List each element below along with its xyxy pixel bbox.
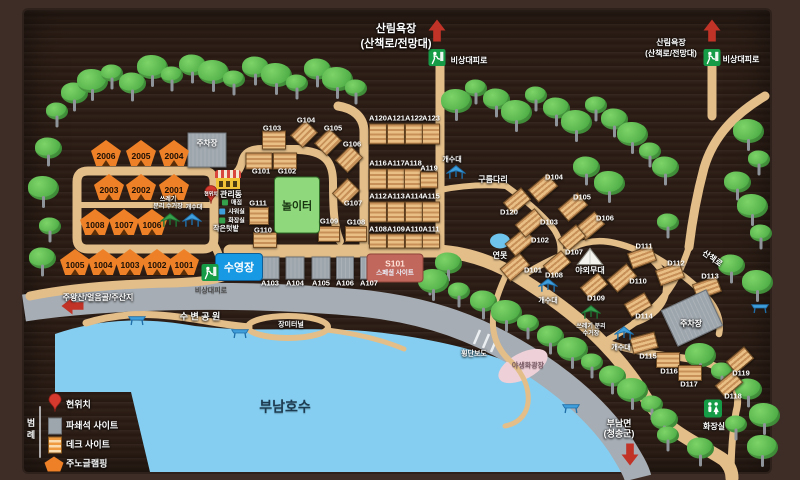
toilet-icon xyxy=(704,400,722,423)
map-label: 쓰레기 분리 xyxy=(576,324,605,330)
deck-site-A110 xyxy=(405,234,423,249)
amenity-row: 화장실 xyxy=(219,216,245,225)
tent-door-icon xyxy=(137,160,145,166)
deck-site-A115 xyxy=(422,202,440,223)
deck-site-A111 xyxy=(422,234,440,249)
amenity-color-icon xyxy=(219,208,225,214)
site-label: G110 xyxy=(254,226,272,235)
glamping-tent-1008: 1008 xyxy=(80,209,110,235)
map-label: (청송군) xyxy=(604,429,635,438)
amenity-color-icon xyxy=(222,199,228,205)
glamping-tent-1003: 1003 xyxy=(115,249,145,275)
glamping-tent-2005: 2005 xyxy=(126,140,156,166)
tree-icon xyxy=(345,80,367,107)
canopy-green-icon xyxy=(160,213,181,236)
glamping-tent-2002: 2002 xyxy=(126,174,156,200)
tent-door-icon xyxy=(153,269,161,275)
glamping-tent-2004: 2004 xyxy=(159,140,189,166)
legend-pin-icon xyxy=(49,393,62,417)
table-icon xyxy=(127,313,147,331)
site-label: D106 xyxy=(596,214,614,223)
deck-site-A114 xyxy=(405,202,423,223)
site-label: D101 xyxy=(524,266,542,275)
tent-door-icon xyxy=(126,269,134,275)
map-label: 부남호수 xyxy=(259,400,311,415)
tree-icon xyxy=(725,416,747,443)
tree-icon xyxy=(747,435,778,469)
map-label: 관리동 xyxy=(220,191,242,199)
site-label: D108 xyxy=(545,271,563,280)
site-label: A106 xyxy=(336,279,354,288)
gravel-site-A106 xyxy=(336,257,354,280)
site-label: D109 xyxy=(587,294,605,303)
deck-site-G106 xyxy=(335,145,363,173)
deck-site-A121 xyxy=(387,124,405,145)
legend-divider xyxy=(39,406,41,458)
site-label: A119 xyxy=(420,164,438,173)
site-label: A110 xyxy=(405,225,423,234)
site-label: G104 xyxy=(297,116,315,125)
site-label: A118 xyxy=(404,159,422,168)
map-label: (산책로/전망대) xyxy=(360,39,431,51)
deck-site-A120 xyxy=(369,124,387,145)
map-label: 수거장 xyxy=(583,331,600,337)
site-label: D110 xyxy=(629,277,647,286)
map-label: 현위치 xyxy=(204,192,218,197)
map-label: 야외무대 xyxy=(575,267,604,275)
map-label: 연못 xyxy=(493,252,508,260)
gravel-site-A104 xyxy=(286,257,305,280)
tree-icon xyxy=(29,248,56,279)
glamping-tent-1002: 1002 xyxy=(142,249,172,275)
tree-icon xyxy=(657,427,679,454)
deck-site-G109 xyxy=(318,226,340,242)
awning xyxy=(215,170,241,178)
site-label: A109 xyxy=(387,225,405,234)
swimming-pool: 수영장 xyxy=(215,253,263,281)
tree-icon xyxy=(28,176,59,210)
playground: 놀이터 xyxy=(274,177,320,234)
deck-site-A112 xyxy=(369,202,387,223)
tent-door-icon xyxy=(99,269,107,275)
map-label: 산책로 xyxy=(701,249,724,269)
table-icon xyxy=(561,401,581,419)
tree-icon xyxy=(652,157,679,188)
deck-site-A117 xyxy=(387,169,405,190)
tent-door-icon xyxy=(120,229,128,235)
tree-icon xyxy=(35,138,62,169)
legend-title: 범례 xyxy=(25,418,38,442)
site-label: A121 xyxy=(387,114,405,123)
map-label: 비상대피로 xyxy=(723,56,760,64)
map-label: 횡단보도 xyxy=(461,350,487,357)
site-label: G107 xyxy=(344,199,362,208)
map-label: 수 변 공 원 xyxy=(180,312,221,321)
arrow-down-icon xyxy=(622,439,639,466)
tree-icon xyxy=(750,225,772,252)
site-label: A123 xyxy=(422,114,440,123)
map-label: 개수대 xyxy=(442,156,461,163)
site-label: G103 xyxy=(263,124,281,133)
site-label: G106 xyxy=(343,140,361,149)
site-label: D114 xyxy=(635,312,653,321)
tree-icon xyxy=(748,151,770,178)
site-label: G108 xyxy=(347,218,365,227)
tree-icon xyxy=(39,218,61,245)
site-label: D107 xyxy=(565,248,583,257)
legend-deck-icon xyxy=(48,437,62,454)
map-items-layer: A120A121A122A123A116A117A118A119A112A113… xyxy=(0,0,800,480)
tent-door-icon xyxy=(170,160,178,166)
site-label: G111 xyxy=(249,199,267,208)
glamping-tent-1007: 1007 xyxy=(109,209,139,235)
deck-site-G108 xyxy=(345,226,367,242)
map-label: 구름다리 xyxy=(478,176,507,184)
glamping-tent-1005: 1005 xyxy=(60,249,90,275)
site-label: D111 xyxy=(635,242,652,251)
amenity-color-icon xyxy=(219,217,225,223)
tent-door-icon xyxy=(105,194,113,200)
map-label: 주왕산/얼음골/주산지 xyxy=(63,294,134,302)
site-label: D112 xyxy=(667,259,685,268)
tent-door-icon xyxy=(71,269,79,275)
site-label: D117 xyxy=(680,380,698,389)
tent-door-icon xyxy=(137,194,145,200)
glamping-tent-1004: 1004 xyxy=(88,249,118,275)
site-label: D118 xyxy=(724,392,742,401)
site-label: A116 xyxy=(369,159,387,168)
tree-icon xyxy=(749,403,780,437)
deck-site-A108 xyxy=(369,234,387,249)
deck-site-G103 xyxy=(262,131,286,150)
canopy-blue-icon xyxy=(182,213,203,236)
tree-icon xyxy=(657,214,679,241)
site-label: D103 xyxy=(540,218,558,227)
tree-icon xyxy=(448,283,470,310)
site-label: 주차장 xyxy=(197,138,218,149)
map-label: 개수대 xyxy=(186,205,203,211)
deck-site-A116 xyxy=(369,169,387,190)
tent-door-icon xyxy=(180,269,188,275)
glamping-tent-2006: 2006 xyxy=(91,140,121,166)
site-label: D116 xyxy=(660,367,678,376)
map-label: 비상대피로 xyxy=(195,287,227,294)
site-label: A120 xyxy=(369,114,387,123)
site-label: A113 xyxy=(387,192,405,201)
legend-gravel-icon xyxy=(48,418,62,435)
map-label: 주차장 xyxy=(680,320,702,328)
exit-icon xyxy=(704,49,721,71)
exit-icon xyxy=(429,49,446,71)
site-label: A107 xyxy=(360,279,378,288)
map-label: 개수대 xyxy=(611,344,630,351)
tree-icon xyxy=(742,270,773,304)
site-label: A122 xyxy=(405,114,423,123)
deck-site-A123 xyxy=(422,124,440,145)
site-label: D120 xyxy=(500,208,518,217)
exit-icon xyxy=(202,264,219,286)
site-label: D105 xyxy=(573,193,591,202)
site-label: D113 xyxy=(701,272,719,281)
legend-item-label: 파쇄석 사이트 xyxy=(66,421,118,430)
site-label: D115 xyxy=(639,352,657,361)
site-label: A115 xyxy=(422,192,440,201)
site-label: G101 xyxy=(252,167,270,176)
deck-site-A119 xyxy=(420,172,438,189)
map-label: 작은텃밭 xyxy=(213,225,239,232)
site-label: A103 xyxy=(261,279,279,288)
glamping-tent-1001: 1001 xyxy=(169,249,199,275)
map-label: 개수대 xyxy=(538,297,557,304)
map-label: 쓰레기 xyxy=(160,197,177,203)
tree-icon xyxy=(687,438,714,469)
deck-site-A109 xyxy=(387,234,405,249)
amenity-row: 샤워실 xyxy=(219,207,245,216)
site-label: A108 xyxy=(369,225,387,234)
legend-item-label: 데크 사이트 xyxy=(66,440,110,449)
deck-site-G111 xyxy=(249,207,269,225)
map-label: 비상대피로 xyxy=(451,57,488,65)
tent-door-icon xyxy=(102,160,110,166)
campground-map-signboard: A120A121A122A123A116A117A118A119A112A113… xyxy=(0,0,800,480)
deck-site-A122 xyxy=(405,124,423,145)
map-label: 화장실 xyxy=(703,423,725,431)
gravel-site-A105 xyxy=(312,257,331,280)
tent-door-icon xyxy=(91,229,99,235)
site-label: A112 xyxy=(369,192,387,201)
site-label: A117 xyxy=(387,159,405,168)
site-label: A105 xyxy=(312,279,330,288)
gravel-site-A103 xyxy=(261,257,280,280)
site-label: G105 xyxy=(324,124,342,133)
site-label: A114 xyxy=(405,192,423,201)
facade xyxy=(216,178,240,189)
tent-door-icon xyxy=(148,229,156,235)
site-label: G109 xyxy=(320,217,338,226)
amenity-label: 화장실 xyxy=(228,216,245,225)
site-label: G102 xyxy=(278,167,296,176)
special-site-label: 스페셜 사이트 xyxy=(376,269,414,276)
tree-icon xyxy=(733,119,764,153)
canopy-blue-icon xyxy=(446,165,467,188)
legend-glamping-icon xyxy=(45,457,64,472)
management-building-icon xyxy=(215,170,241,190)
map-label: 장미터널 xyxy=(278,321,304,328)
map-label: 분리 수거장 xyxy=(153,204,182,210)
table-icon xyxy=(750,301,770,319)
map-label: (산책로/전망대) xyxy=(645,50,697,58)
map-label: 산림욕장 xyxy=(376,24,416,36)
legend-item-label: 현위치 xyxy=(66,400,91,409)
site-label: D119 xyxy=(732,369,750,378)
arrow-up-icon xyxy=(704,20,721,47)
table-icon xyxy=(230,326,250,344)
map-label: 야생화광장 xyxy=(512,362,544,369)
site-label: D102 xyxy=(531,236,549,245)
deck-site-A113 xyxy=(387,202,405,223)
tree-icon xyxy=(737,194,768,228)
site-label: D104 xyxy=(545,173,563,182)
legend-item-label: 주노글램핑 xyxy=(66,459,107,468)
site-label: A104 xyxy=(286,279,304,288)
map-label: 산림욕장 xyxy=(656,39,685,47)
amenity-label: 샤워실 xyxy=(228,207,245,216)
site-label: A111 xyxy=(422,225,439,234)
glamping-tent-2003: 2003 xyxy=(94,174,124,200)
tree-icon xyxy=(594,171,625,205)
special-site-id: S101 xyxy=(385,259,405,269)
